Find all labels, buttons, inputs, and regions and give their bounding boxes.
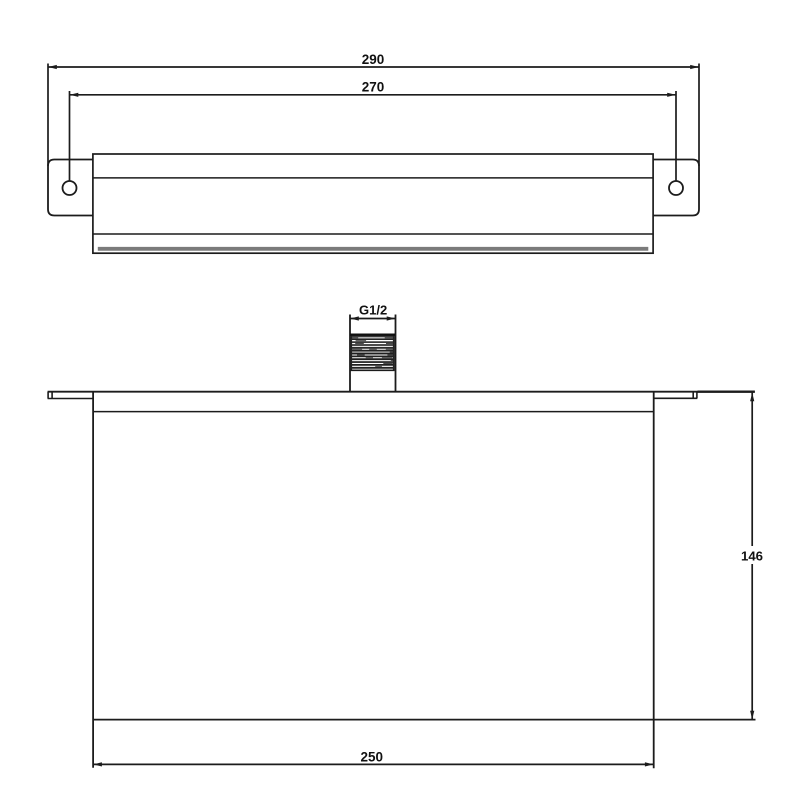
svg-text:146: 146 bbox=[741, 548, 763, 563]
svg-text:270: 270 bbox=[362, 79, 385, 94]
svg-text:G1/2: G1/2 bbox=[359, 303, 387, 318]
svg-text:250: 250 bbox=[361, 750, 384, 765]
svg-text:290: 290 bbox=[362, 52, 385, 67]
